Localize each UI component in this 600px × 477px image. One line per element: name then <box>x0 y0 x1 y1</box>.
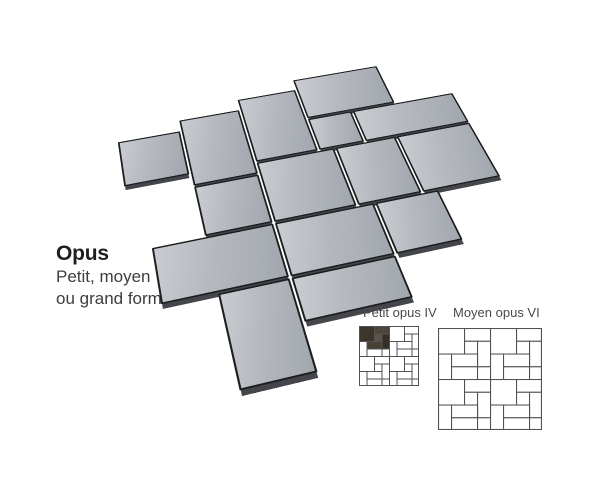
tile <box>118 131 190 186</box>
petit-opus-iv-diagram <box>359 326 419 386</box>
moyen-opus-label: Moyen opus VI <box>453 305 540 320</box>
petit-opus-label: Petit opus IV <box>363 305 437 320</box>
moyen-opus-vi-diagram <box>438 328 542 430</box>
